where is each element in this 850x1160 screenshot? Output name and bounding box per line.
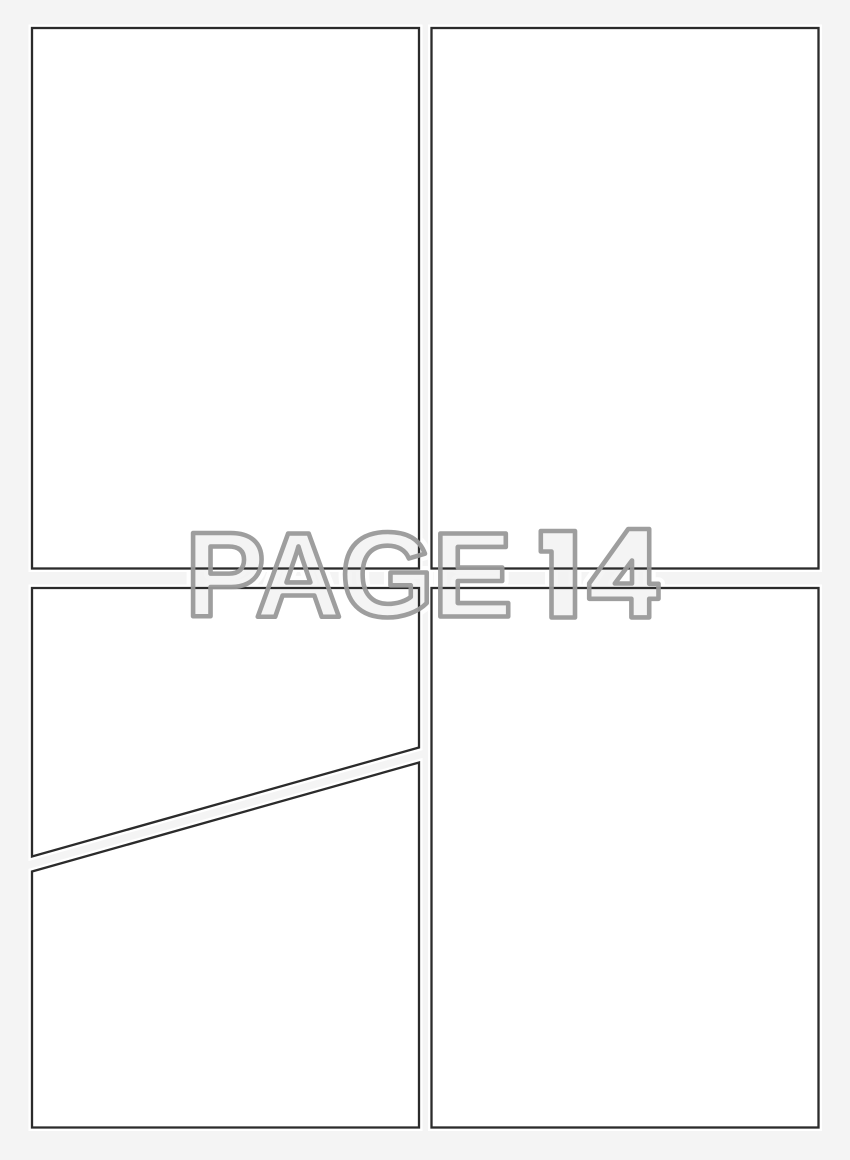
svg-text:PAGE: PAGE — [185, 507, 511, 643]
